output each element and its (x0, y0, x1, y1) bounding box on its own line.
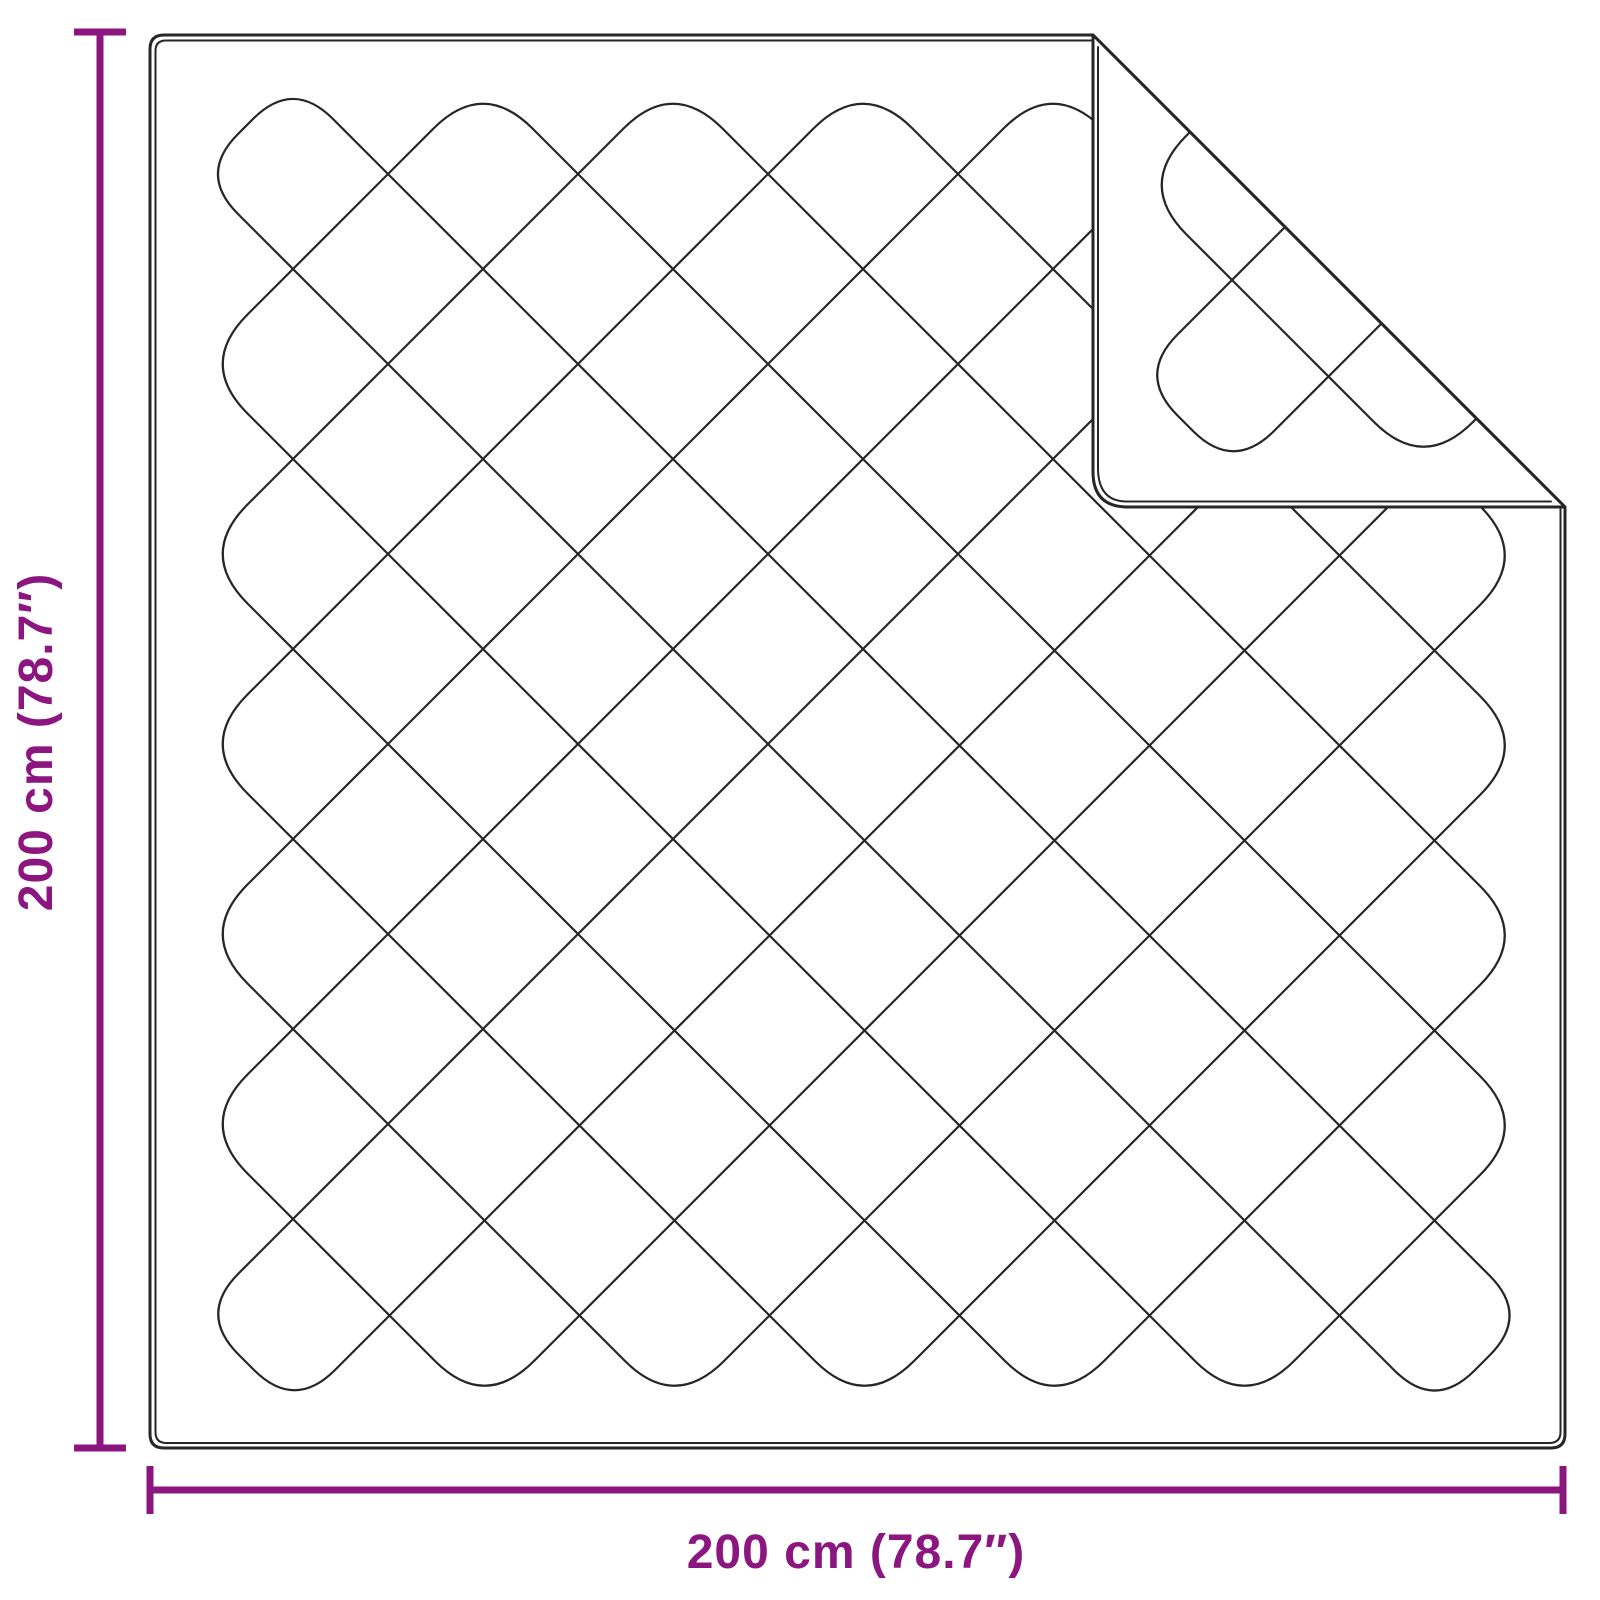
height-dimension-label: 200 cm (78.7″) (10, 573, 63, 912)
width-dimension-label: 200 cm (78.7″) (687, 1526, 1026, 1579)
diagram-canvas: 200 cm (78.7″) 200 cm (78.7″) (0, 0, 1600, 1600)
blanket-dimension-diagram: 200 cm (78.7″) 200 cm (78.7″) (0, 0, 1600, 1600)
